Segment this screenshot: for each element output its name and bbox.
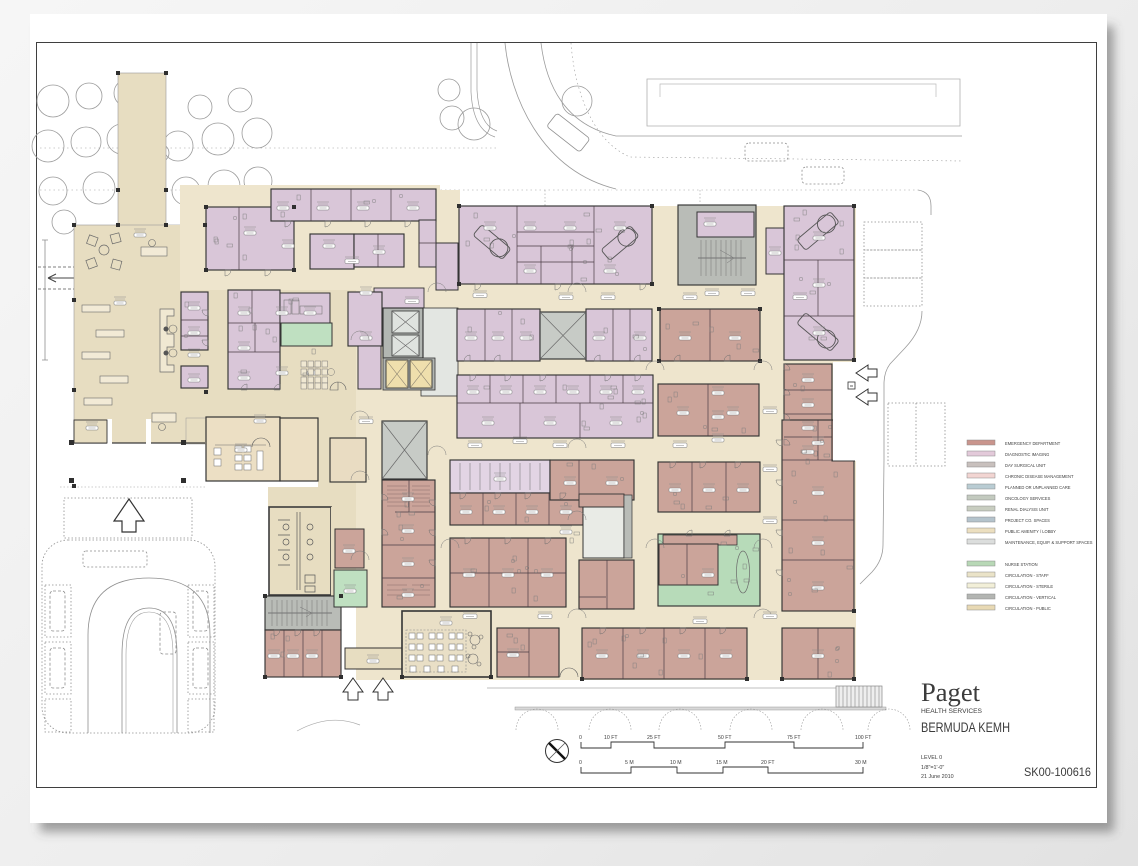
svg-text:10 FT: 10 FT bbox=[604, 735, 618, 741]
svg-text:0: 0 bbox=[579, 735, 582, 741]
svg-text:EMERGENCY DEPARTMENT: EMERGENCY DEPARTMENT bbox=[1005, 441, 1061, 446]
svg-text:DIAGNOSTIC IMAGING: DIAGNOSTIC IMAGING bbox=[1005, 452, 1049, 457]
svg-text:BERMUDA KEMH: BERMUDA KEMH bbox=[921, 720, 1010, 735]
svg-text:PLANNED OR UNPLANNED CARE: PLANNED OR UNPLANNED CARE bbox=[1005, 485, 1071, 490]
svg-text:CHRONIC DISEASE MANAGEMENT: CHRONIC DISEASE MANAGEMENT bbox=[1005, 474, 1074, 479]
svg-text:RENAL DIALYSIS UNIT: RENAL DIALYSIS UNIT bbox=[1005, 507, 1049, 512]
svg-text:5 M: 5 M bbox=[625, 760, 634, 766]
svg-text:NURSE STATION: NURSE STATION bbox=[1005, 562, 1038, 567]
svg-text:10 M: 10 M bbox=[670, 760, 682, 766]
svg-text:0: 0 bbox=[579, 760, 582, 766]
svg-text:HEALTH SERVICES: HEALTH SERVICES bbox=[921, 708, 982, 715]
svg-text:CIRCULATION - PUBLIC: CIRCULATION - PUBLIC bbox=[1005, 606, 1051, 611]
svg-text:CIRCULATION - STERILE: CIRCULATION - STERILE bbox=[1005, 584, 1053, 589]
svg-text:21 June 2010: 21 June 2010 bbox=[921, 774, 954, 780]
svg-text:15 M: 15 M bbox=[716, 760, 728, 766]
svg-text:DAY SURGICAL UNIT: DAY SURGICAL UNIT bbox=[1005, 463, 1046, 468]
svg-text:PUBLIC AMENITY / LOBBY: PUBLIC AMENITY / LOBBY bbox=[1005, 529, 1056, 534]
svg-text:75 FT: 75 FT bbox=[787, 735, 801, 741]
svg-text:1/8"=1'-0": 1/8"=1'-0" bbox=[921, 765, 944, 771]
svg-text:PROJECT CO. SPACES: PROJECT CO. SPACES bbox=[1005, 518, 1050, 523]
svg-text:LEVEL 0: LEVEL 0 bbox=[921, 755, 942, 761]
svg-text:20 FT: 20 FT bbox=[761, 760, 775, 766]
svg-text:CIRCULATION - STAFF: CIRCULATION - STAFF bbox=[1005, 573, 1049, 578]
svg-text:30 M: 30 M bbox=[855, 760, 867, 766]
svg-text:Paget: Paget bbox=[921, 678, 981, 707]
svg-text:50 FT: 50 FT bbox=[718, 735, 732, 741]
svg-text:CIRCULATION - VERTICAL: CIRCULATION - VERTICAL bbox=[1005, 595, 1057, 600]
svg-text:MAINTENANCE, EQUIP. & SUPPORT: MAINTENANCE, EQUIP. & SUPPORT SPACES bbox=[1005, 540, 1093, 545]
svg-text:ONCOLOGY SERVICES: ONCOLOGY SERVICES bbox=[1005, 496, 1051, 501]
svg-text:SK00-100616: SK00-100616 bbox=[1024, 765, 1091, 779]
svg-text:100 FT: 100 FT bbox=[855, 735, 872, 741]
svg-text:25 FT: 25 FT bbox=[647, 735, 661, 741]
